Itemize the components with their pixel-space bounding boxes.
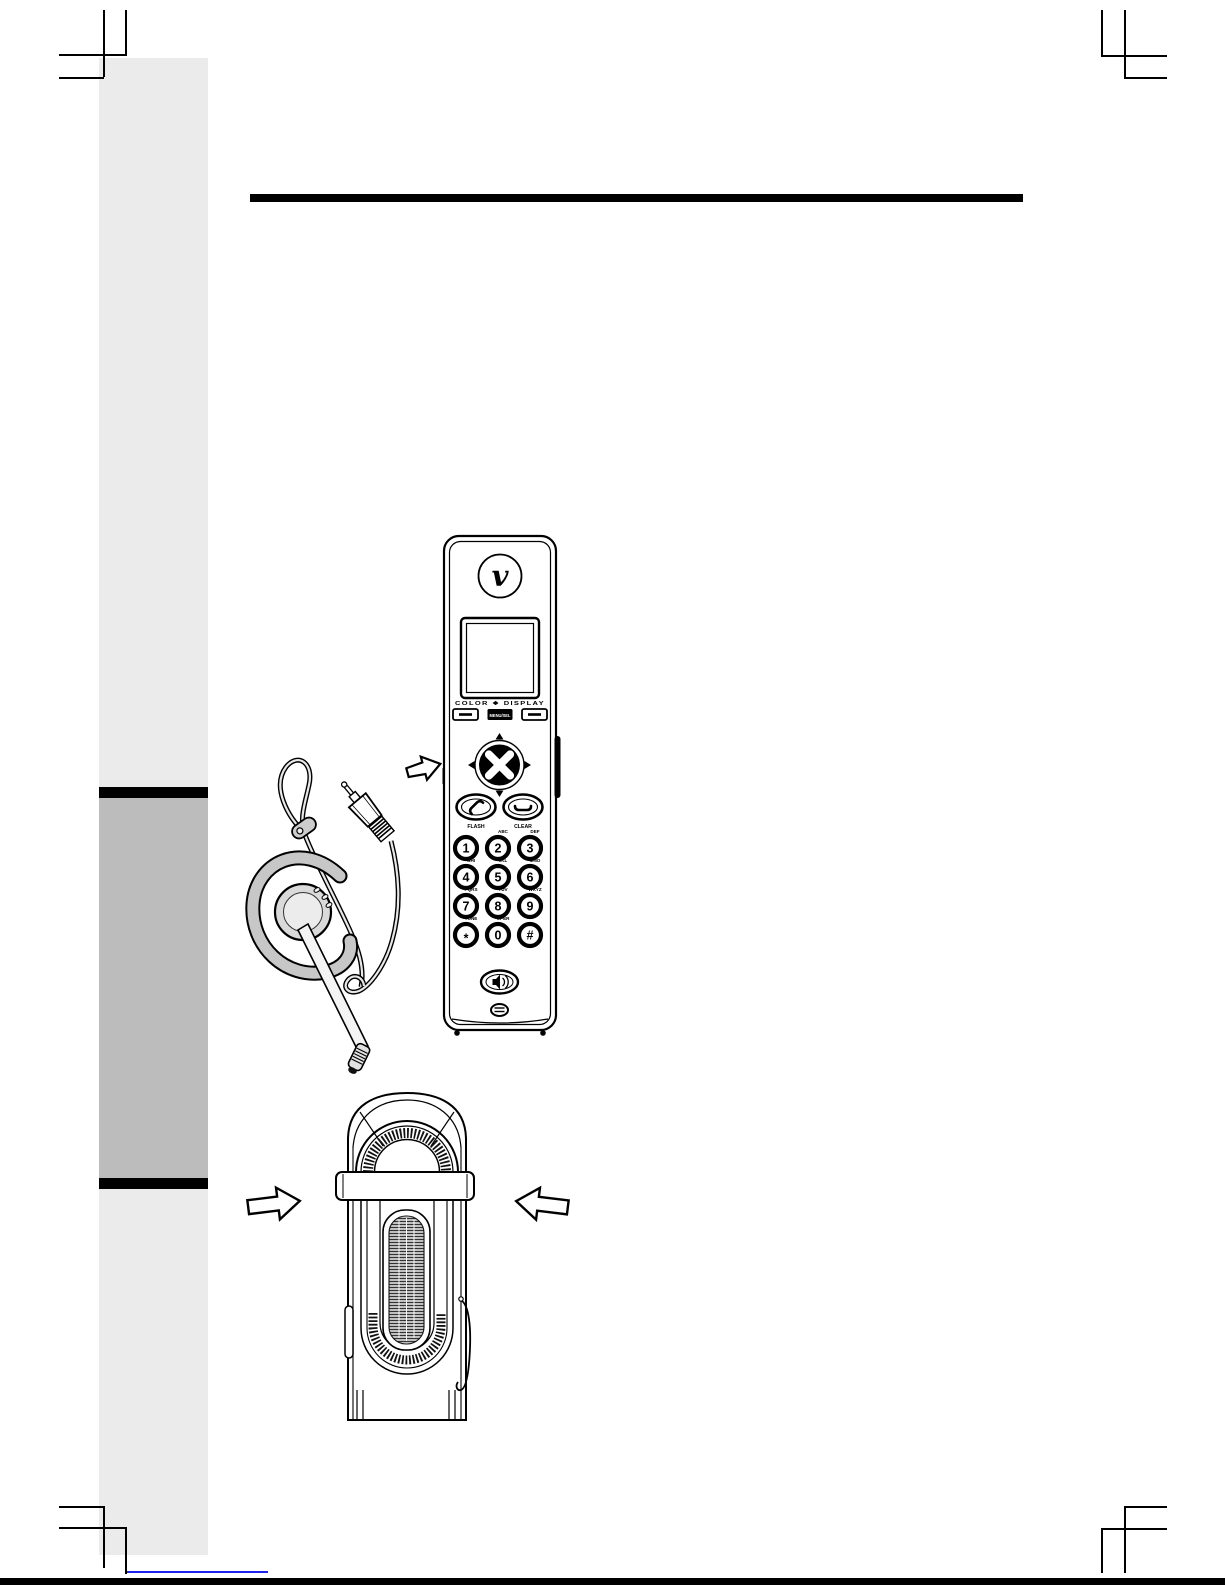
display-screen-frame xyxy=(461,618,539,698)
sidebar-band-light-top xyxy=(99,58,208,787)
svg-text:6: 6 xyxy=(527,871,534,885)
display-caption: COLOR ❖ DISPLAY xyxy=(455,700,545,707)
crop-mark xyxy=(59,1527,127,1529)
crop-mark xyxy=(1101,1528,1167,1530)
crop-mark xyxy=(125,1527,127,1574)
crop-mark xyxy=(59,1506,104,1508)
end-key xyxy=(504,795,543,820)
handset-foot xyxy=(454,1030,460,1036)
crop-mark xyxy=(1101,55,1167,57)
menu-select-label: MENU/SEL xyxy=(490,713,511,718)
svg-text:3: 3 xyxy=(527,842,534,856)
svg-text:OPER: OPER xyxy=(496,916,510,921)
sidebar-band-gray-middle xyxy=(99,798,208,1178)
manual-page: v COLOR ❖ DISPLAY MENU/SEL FLASH xyxy=(0,0,1225,1585)
svg-text:1: 1 xyxy=(463,842,470,856)
crop-mark xyxy=(59,77,104,79)
talk-key xyxy=(457,795,496,820)
handset-illustration: v COLOR ❖ DISPLAY MENU/SEL FLASH xyxy=(438,530,562,1040)
headset-illustration xyxy=(240,744,440,1084)
handset-foot xyxy=(540,1030,546,1036)
sidebar-band-light-bottom xyxy=(99,1189,208,1555)
crop-mark xyxy=(1124,1506,1167,1508)
crop-mark xyxy=(1124,77,1167,79)
footer-link-underline[interactable] xyxy=(127,1571,268,1573)
svg-text:0: 0 xyxy=(495,929,502,943)
svg-text:7: 7 xyxy=(463,900,470,914)
clip-arm xyxy=(383,1210,430,1350)
handset-side-volume-key xyxy=(555,736,561,798)
mic-boom-tip xyxy=(345,1042,371,1076)
belt-clip-band xyxy=(336,1172,474,1200)
crop-mark xyxy=(59,54,127,56)
crop-mark xyxy=(103,1506,105,1568)
crop-mark xyxy=(103,10,105,77)
microphone xyxy=(491,1004,508,1016)
svg-text:JKL: JKL xyxy=(499,858,508,863)
crop-mark xyxy=(125,10,127,54)
handset-headset-jack xyxy=(443,768,446,784)
crop-mark xyxy=(1101,1528,1103,1573)
svg-text:WXYZ: WXYZ xyxy=(528,887,541,892)
crop-mark xyxy=(1101,10,1103,55)
speakerphone-key xyxy=(481,971,518,994)
sidebar-band-black-lower xyxy=(99,1178,208,1189)
svg-text:TONE: TONE xyxy=(465,916,478,921)
svg-text:2: 2 xyxy=(495,842,502,856)
belt-clip-right-arrow-icon xyxy=(512,1182,570,1228)
svg-text:*: * xyxy=(464,932,469,946)
svg-text:4: 4 xyxy=(463,871,470,885)
svg-text:DEF: DEF xyxy=(530,829,539,834)
svg-text:TUV: TUV xyxy=(498,887,508,892)
keypad-key-pound: # xyxy=(519,924,541,946)
belt-clip-illustration xyxy=(333,1088,473,1425)
brand-logo-icon: v xyxy=(492,559,510,593)
svg-text:MNO: MNO xyxy=(530,858,541,863)
plug-direction-arrow-icon xyxy=(404,752,443,784)
section-heading-bar xyxy=(250,194,1023,202)
keypad: 1 ABC2 DEF3 GHI4 JKL5 MNO6 PQRS7 TUV8 WX… xyxy=(455,829,542,946)
svg-text:8: 8 xyxy=(495,900,502,914)
svg-text:9: 9 xyxy=(527,900,534,914)
sidebar-band-black-upper xyxy=(99,787,208,798)
crop-mark xyxy=(1124,1506,1126,1573)
belt-clip-left-arrow-icon xyxy=(246,1182,304,1228)
svg-text:5: 5 xyxy=(495,871,502,885)
page-bottom-edge xyxy=(0,1578,1225,1585)
headset-plug xyxy=(334,775,396,843)
svg-text:ABC: ABC xyxy=(498,829,509,834)
svg-text:PQRS: PQRS xyxy=(464,887,477,892)
crop-mark xyxy=(1124,10,1126,77)
keypad-key-1: 1 xyxy=(455,837,477,859)
latch-pivot xyxy=(459,1297,463,1301)
svg-text:#: # xyxy=(527,929,534,943)
talk-key-label: FLASH xyxy=(467,824,485,830)
svg-text:GHI: GHI xyxy=(467,858,475,863)
side-button xyxy=(345,1306,353,1358)
